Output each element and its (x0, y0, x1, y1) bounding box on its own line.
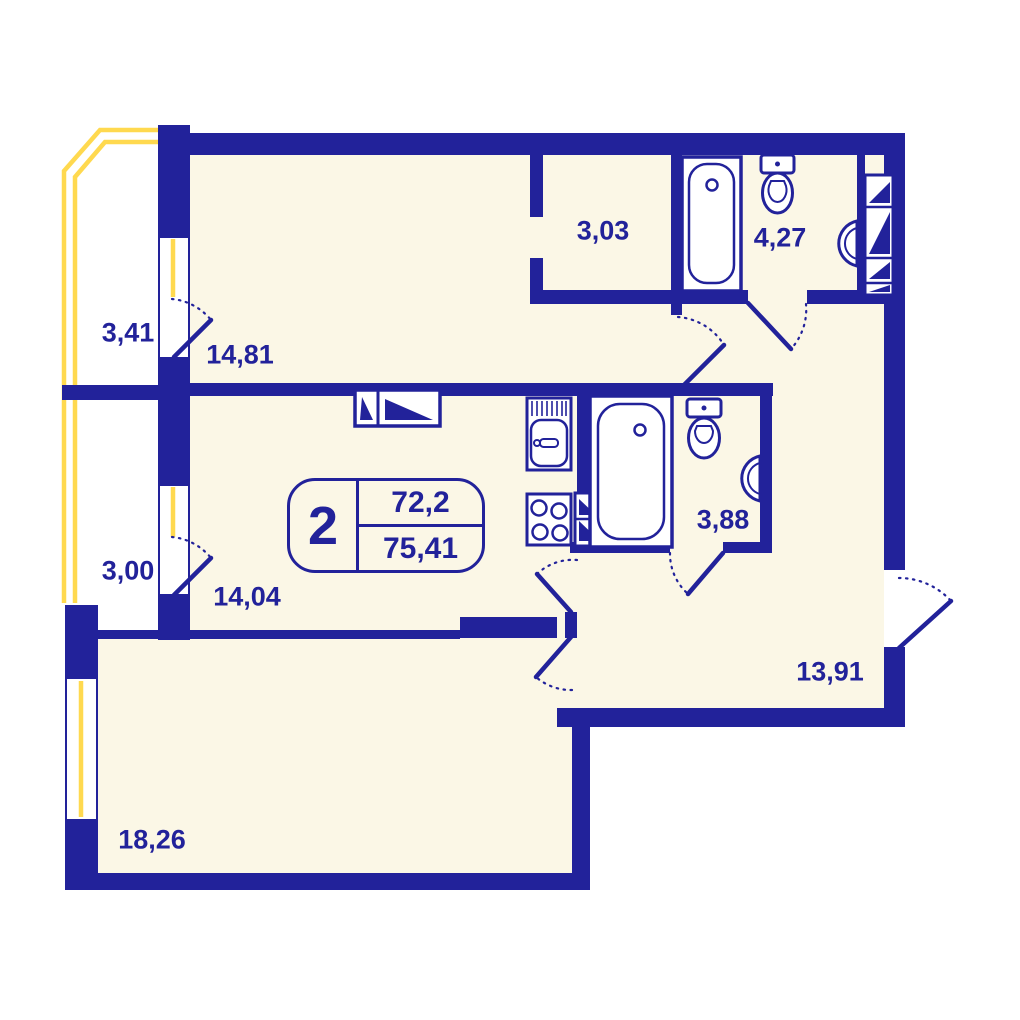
entrance-threshold (884, 570, 905, 647)
kitchen-sink-icon (527, 398, 571, 470)
window-living-room (66, 678, 97, 820)
room-area-label-hallway: 13,91 (796, 657, 864, 688)
rooms-count-label: 2 (290, 481, 359, 570)
room-area-label-bathroom-main: 4,27 (754, 223, 807, 254)
vent-shaft-mid-icon (355, 390, 440, 426)
room-area-label-bedroom: 14,81 (206, 340, 274, 371)
area-main-label: 72,2 (359, 481, 482, 527)
room-area-label-wardrobe: 3,03 (577, 216, 630, 247)
areas-cells: 72,2 75,41 (359, 481, 482, 570)
room-area-label-bathroom-second: 3,88 (697, 505, 750, 536)
door-entrance (899, 601, 951, 648)
floor-plan: 3,41 14,81 3,03 4,27 3,00 14,04 3,88 13,… (0, 0, 1020, 1020)
room-area-label-balcony-upper: 3,41 (102, 318, 155, 349)
bathtub-second-icon (590, 396, 672, 547)
stove-icon (527, 494, 571, 545)
toilet-second-icon (687, 399, 721, 458)
window-kitchen-balcony (159, 485, 189, 595)
floor-plan-drawing (0, 0, 1020, 1020)
window-bedroom-balcony (159, 237, 189, 358)
room-area-label-balcony-lower: 3,00 (102, 556, 155, 587)
vent-shaft-top-right-icon (865, 175, 893, 295)
balcony-glazing (64, 130, 158, 603)
area-total-label: 75,41 (359, 527, 482, 570)
room-area-label-kitchen-living: 14,04 (213, 582, 281, 613)
room-area-label-living-room: 18,26 (118, 825, 186, 856)
apartment-info-box: 2 72,2 75,41 (287, 478, 485, 573)
toilet-main-icon (761, 155, 794, 213)
bathtub-main-icon (682, 157, 741, 291)
